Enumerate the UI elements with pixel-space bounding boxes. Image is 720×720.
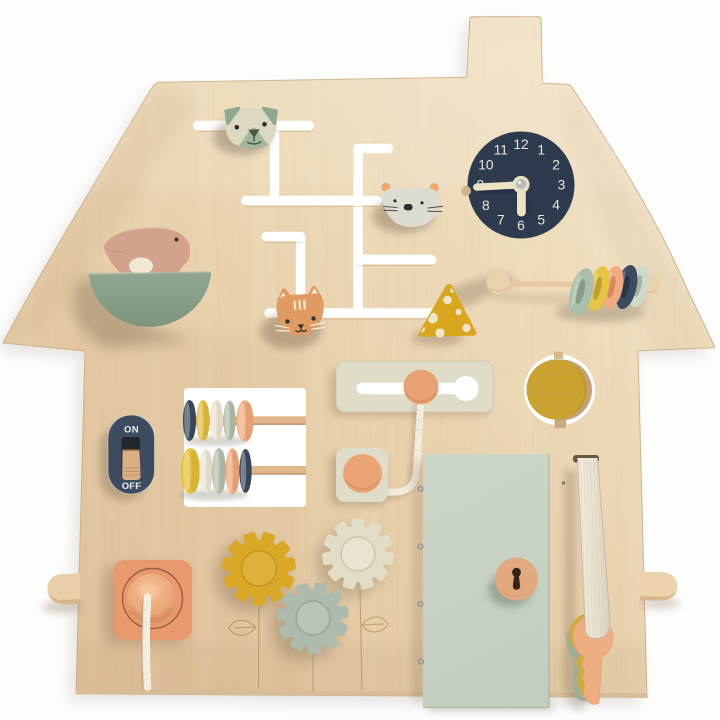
svg-text:10: 10	[478, 157, 494, 172]
svg-text:3: 3	[558, 178, 566, 193]
svg-text:ON: ON	[124, 425, 139, 436]
svg-text:2: 2	[552, 157, 560, 172]
svg-text:12: 12	[513, 137, 528, 152]
svg-text:7: 7	[497, 213, 505, 228]
svg-text:11: 11	[494, 142, 508, 157]
svg-text:5: 5	[537, 213, 545, 228]
svg-text:8: 8	[482, 198, 490, 213]
svg-text:6: 6	[517, 218, 525, 233]
svg-text:OFF: OFF	[122, 481, 142, 492]
svg-text:1: 1	[537, 142, 545, 157]
svg-text:4: 4	[552, 198, 560, 213]
